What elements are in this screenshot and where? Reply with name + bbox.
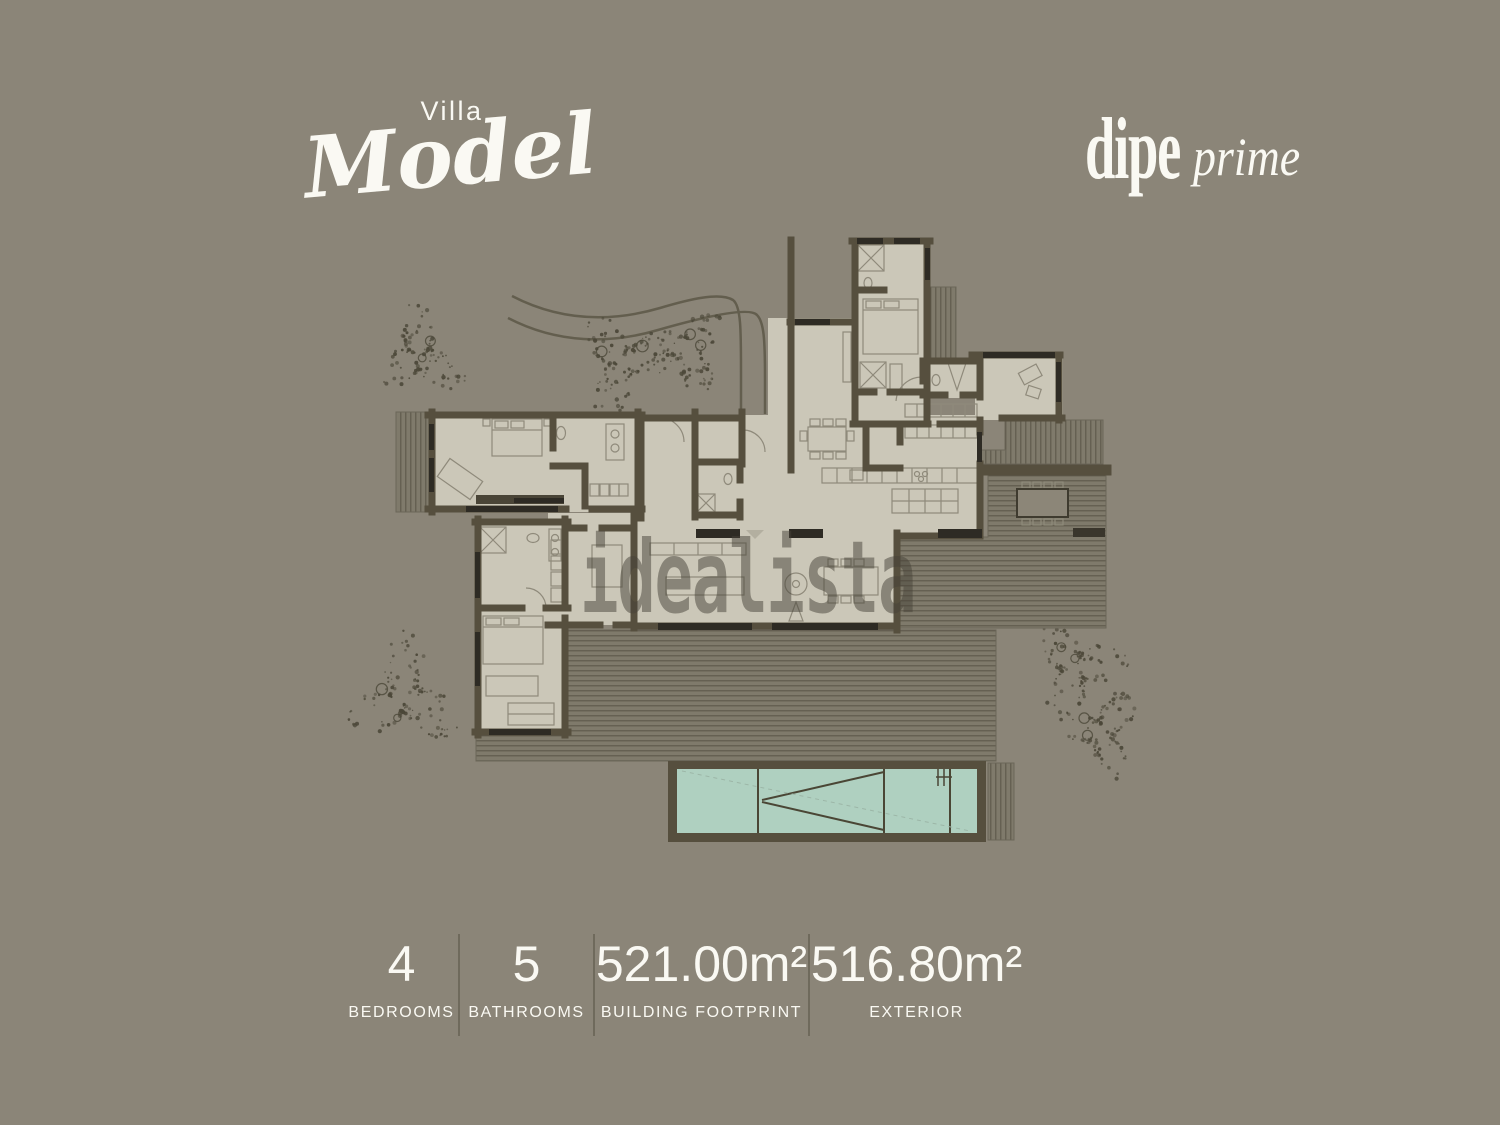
deck-east-upper [1005, 420, 1103, 464]
terrace-bench [1073, 528, 1105, 537]
stat-value: 5 [513, 936, 541, 992]
stat-column-bathrooms: 5BATHROOMS [458, 934, 593, 1036]
listing-card: Villa Model dipe prime [0, 0, 1500, 1125]
deck-north-wing [930, 287, 956, 358]
property-stats: 4BEDROOMS5BATHROOMS521.00m²BUILDING FOOT… [345, 934, 1023, 1036]
swimming-pool [668, 761, 986, 842]
room-lounge-east [975, 352, 1063, 420]
deck-west [396, 412, 432, 512]
stat-label: BATHROOMS [468, 1004, 584, 1022]
driveway [508, 296, 765, 414]
stat-column-bedrooms: 4BEDROOMS [345, 934, 458, 1036]
pool-ladder [936, 769, 952, 786]
entry-vestibule [742, 415, 790, 533]
stat-label: BEDROOMS [348, 1004, 454, 1022]
stat-value: 521.00m² [596, 936, 807, 992]
room-wc [695, 463, 740, 517]
terrace-table [1017, 489, 1068, 517]
stat-column-exterior: 516.80m²EXTERIOR [808, 934, 1023, 1036]
stat-label: EXTERIOR [869, 1004, 964, 1022]
stat-label: BUILDING FOOTPRINT [601, 1004, 802, 1022]
stat-value: 4 [388, 936, 416, 992]
deck-pool-side [988, 763, 1014, 840]
room-dining [790, 318, 855, 420]
stat-column-building-footprint: 521.00m²BUILDING FOOTPRINT [593, 934, 808, 1036]
stat-value: 516.80m² [811, 936, 1022, 992]
entry-walkway [768, 318, 790, 418]
